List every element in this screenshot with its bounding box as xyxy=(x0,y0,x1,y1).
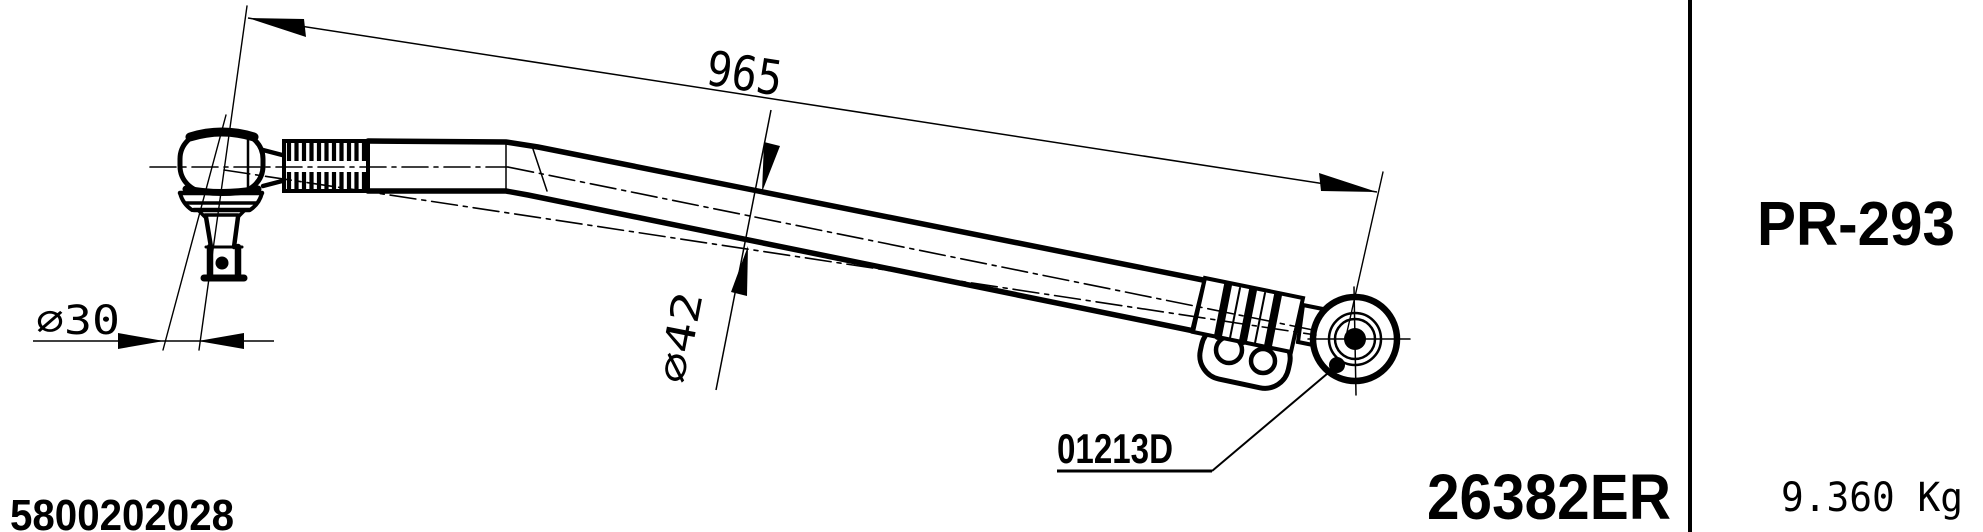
rod-body xyxy=(368,141,1208,331)
dim-d42-arrow-top xyxy=(762,142,780,192)
ball-housing xyxy=(180,133,263,192)
dimension-d42: ∅42 xyxy=(650,110,780,390)
ring-end xyxy=(1308,287,1410,395)
dim-d30-arrow-right xyxy=(198,333,244,349)
detail-code-label: 01213D xyxy=(1057,425,1173,472)
dimension-length-label: 965 xyxy=(703,41,787,108)
dim-d30-arrow-left xyxy=(118,333,164,349)
dim-965-arrow-right xyxy=(1319,173,1377,192)
technical-drawing-canvas: 965 ∅30 ∅42 01213D 5800202028 26382ER PR… xyxy=(0,0,1983,532)
housing-top-band xyxy=(190,132,254,137)
model-code-label: PR-293 xyxy=(1757,190,1955,259)
bracket-bolt-hole-2 xyxy=(1251,349,1275,373)
detail-callout: 01213D xyxy=(1057,368,1334,472)
dimension-stud-diameter-label: ∅30 xyxy=(36,298,120,344)
dimension-rod-diameter-label: ∅42 xyxy=(650,288,713,387)
left-ball-joint xyxy=(180,132,286,278)
bend-junction-line-2 xyxy=(532,146,547,191)
oem-reference-label: 5800202028 xyxy=(10,491,234,532)
dim-d42-arrow-bottom xyxy=(731,246,748,296)
stud-left-side xyxy=(206,217,211,247)
dim-d42-line xyxy=(716,110,771,390)
rod-bottom-edge xyxy=(368,191,1194,331)
weight-label: 9.360 Kg xyxy=(1781,475,1963,521)
stud-right-side xyxy=(234,217,238,247)
side-panel: PR-293 9.360 Kg xyxy=(1757,190,1963,521)
part-number-label: 26382ER xyxy=(1427,461,1671,532)
dim-965-arrow-left xyxy=(248,18,306,37)
cotter-pin-hole xyxy=(216,257,229,270)
catalog-page: 965 ∅30 ∅42 01213D 5800202028 26382ER PR… xyxy=(0,0,1983,532)
threaded-section xyxy=(284,141,368,191)
dimension-d30: ∅30 xyxy=(33,298,274,349)
dimension-965: 965 xyxy=(248,18,1377,192)
dim-965-line xyxy=(248,18,1377,192)
